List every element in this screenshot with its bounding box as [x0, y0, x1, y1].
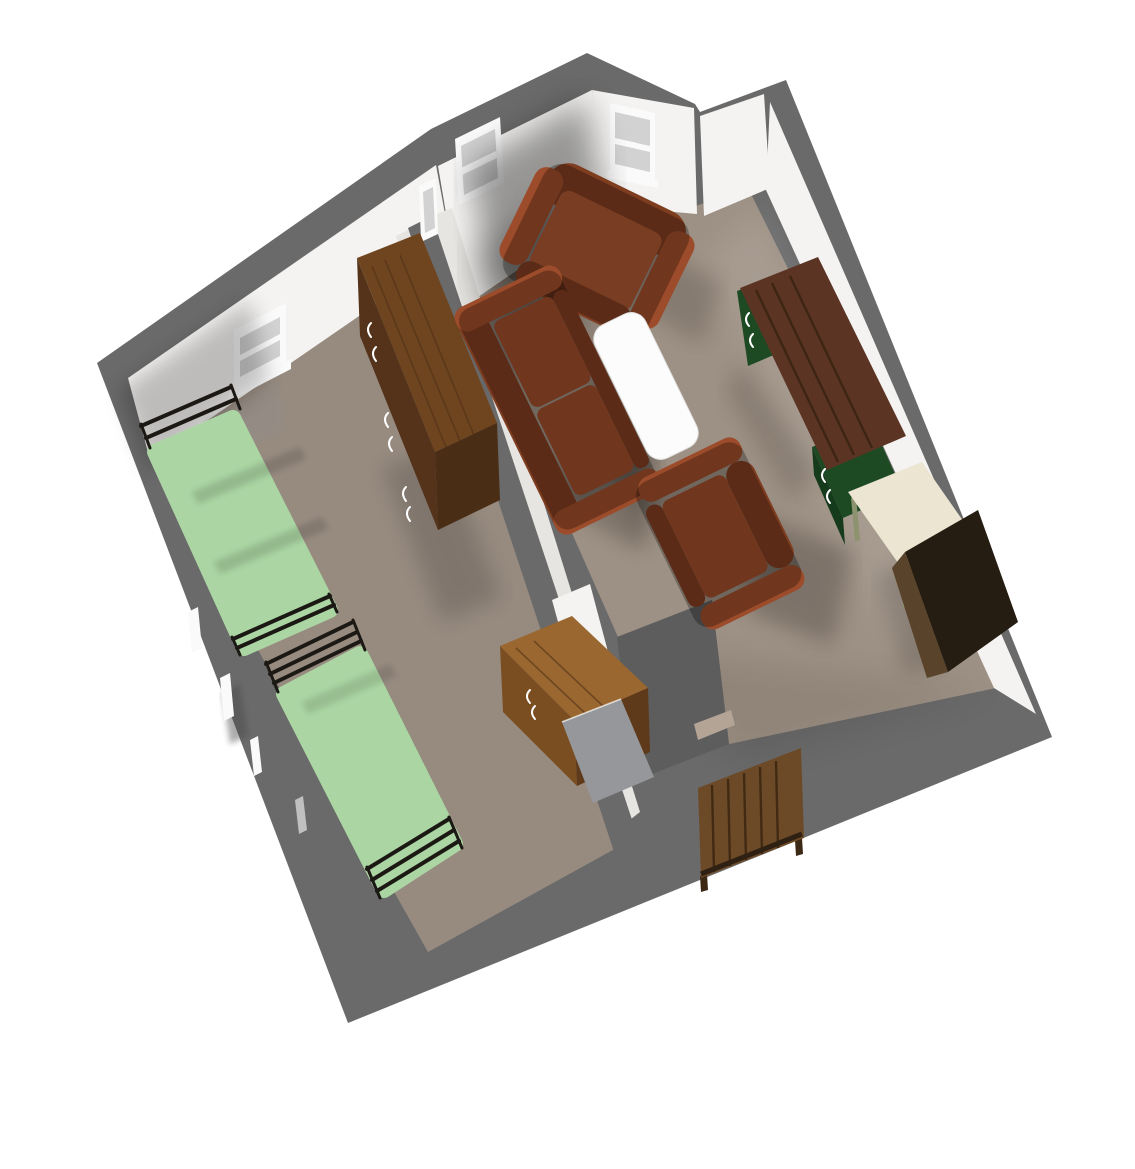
bay-window-2-pane	[423, 187, 435, 233]
bay-window-3	[607, 103, 658, 188]
floor-plan-render	[0, 0, 1135, 1169]
bay-window-2	[419, 178, 438, 242]
floor-plan-render-stage	[0, 0, 1135, 1169]
